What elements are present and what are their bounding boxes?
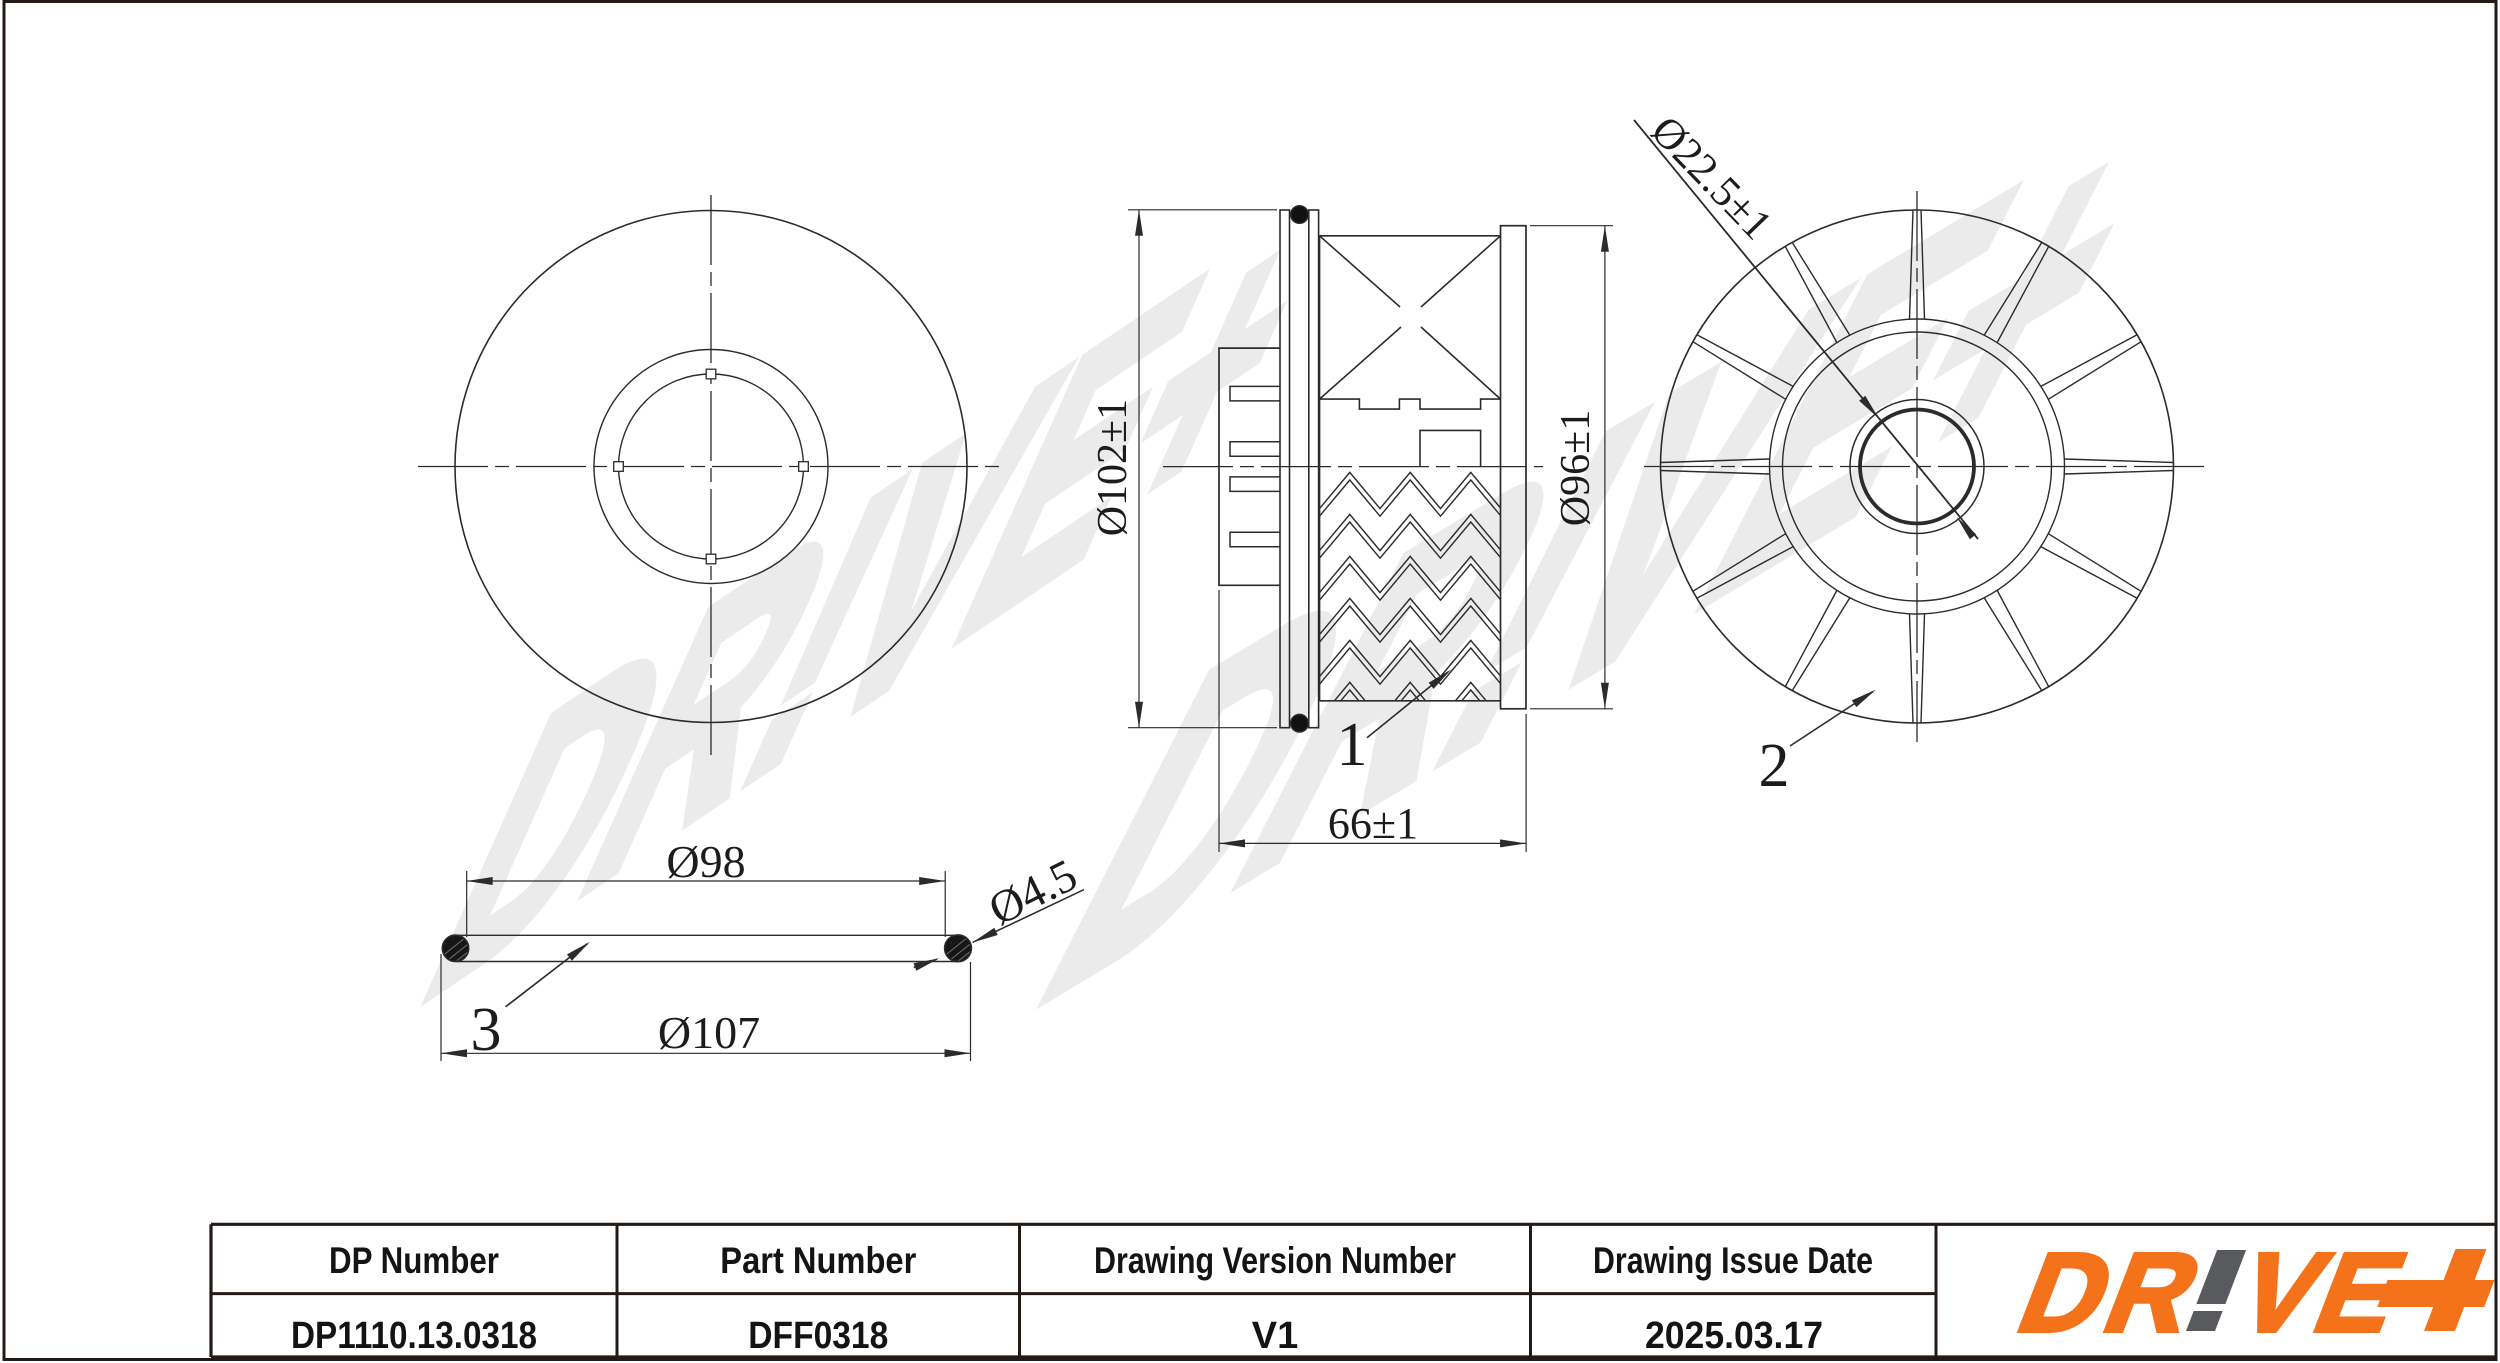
svg-text:Part Number: Part Number [720, 1240, 916, 1281]
svg-text:2: 2 [1759, 732, 1790, 800]
svg-text:Drawing Version Number: Drawing Version Number [1094, 1240, 1456, 1281]
svg-text:Ø98: Ø98 [666, 836, 745, 887]
svg-text:2025.03.17: 2025.03.17 [1645, 1315, 1823, 1357]
svg-text:DFF0318: DFF0318 [748, 1315, 888, 1357]
svg-text:Drawing Issue Date: Drawing Issue Date [1593, 1240, 1873, 1281]
svg-text:66±1: 66±1 [1328, 799, 1418, 848]
svg-text:3: 3 [471, 996, 502, 1064]
svg-text:V1: V1 [1252, 1315, 1298, 1357]
svg-text:Ø96±1: Ø96±1 [1553, 410, 1599, 526]
svg-text:DP1110.13.0318: DP1110.13.0318 [291, 1315, 537, 1357]
svg-text:Ø107: Ø107 [658, 1007, 760, 1058]
svg-text:Ø102±1: Ø102±1 [1090, 399, 1136, 536]
svg-text:DP Number: DP Number [329, 1240, 499, 1281]
svg-text:1: 1 [1337, 711, 1368, 779]
